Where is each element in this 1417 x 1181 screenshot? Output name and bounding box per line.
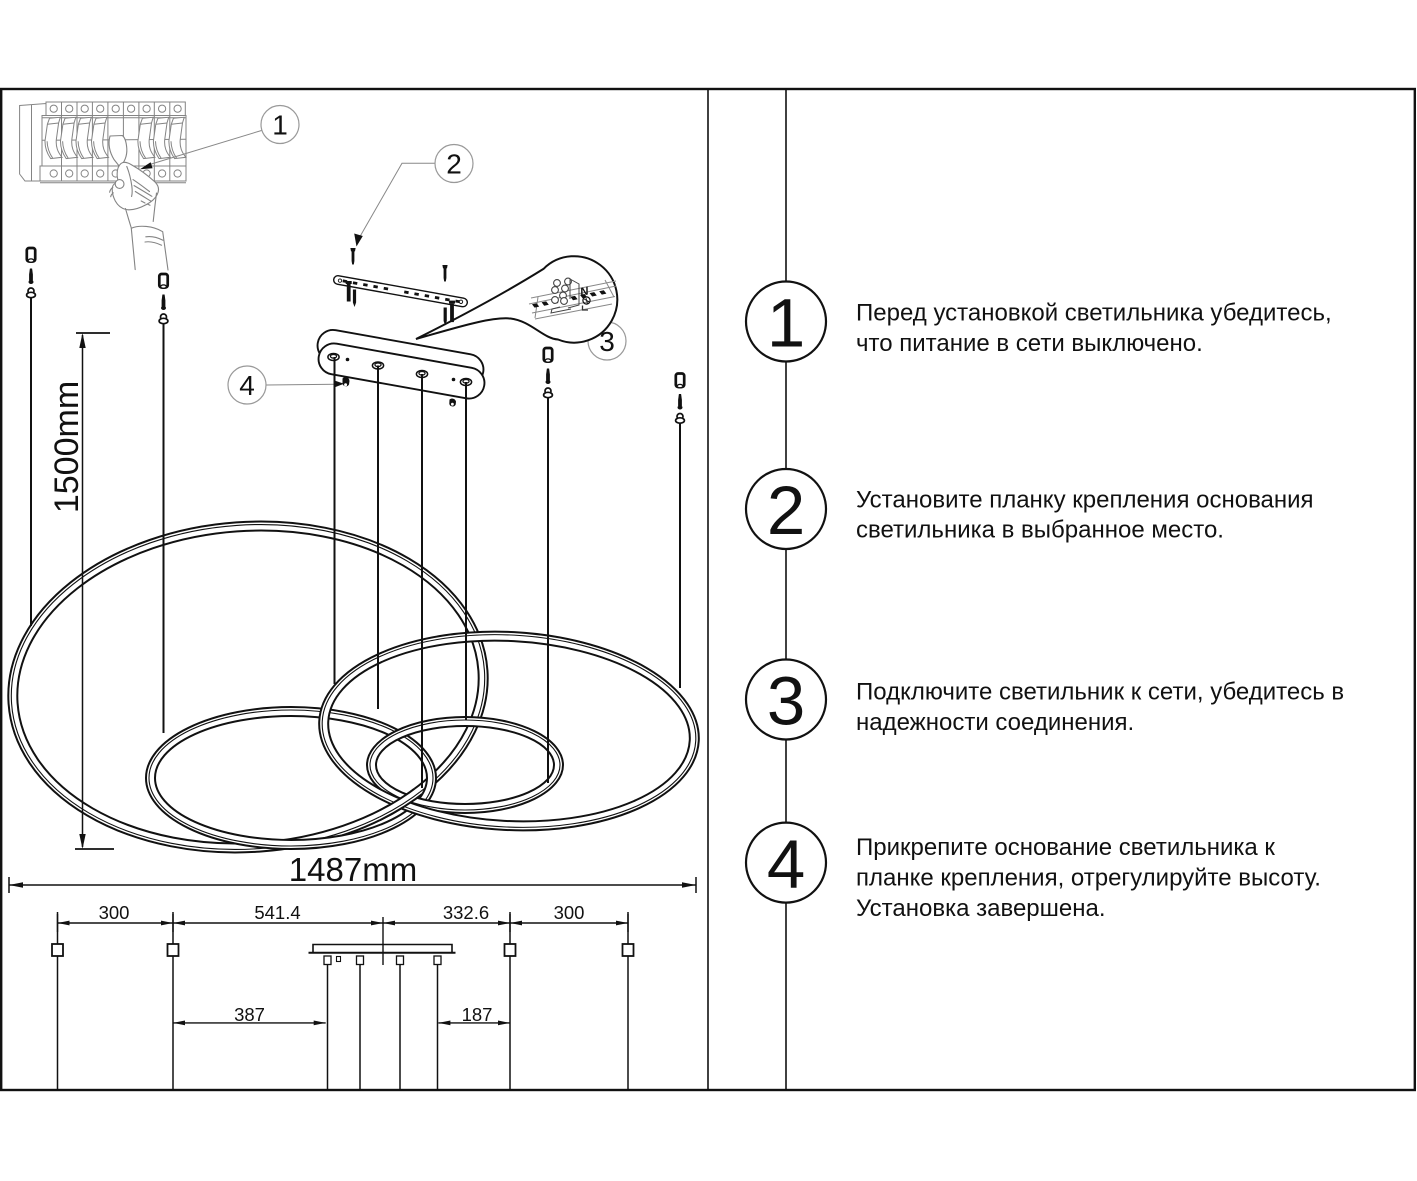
- svg-text:планке крепления, отрегулируйт: планке крепления, отрегулируйте высоту.: [856, 864, 1321, 891]
- svg-text:4: 4: [239, 370, 255, 401]
- svg-text:Подключите светильник к сети,: Подключите светильник к сети, убедитесь …: [856, 679, 1344, 706]
- svg-text:300: 300: [99, 902, 130, 923]
- svg-text:1487mm: 1487mm: [289, 851, 417, 888]
- svg-text:надежности соединения.: надежности соединения.: [856, 709, 1134, 736]
- svg-text:2: 2: [446, 149, 462, 180]
- svg-text:Установите планку крепления ос: Установите планку крепления основания: [856, 486, 1314, 513]
- svg-text:187: 187: [462, 1004, 493, 1025]
- svg-text:Установка завершена.: Установка завершена.: [856, 895, 1106, 922]
- svg-text:541.4: 541.4: [254, 902, 300, 923]
- svg-text:что питание в сети выключено.: что питание в сети выключено.: [856, 330, 1203, 357]
- svg-text:1500mm: 1500mm: [48, 381, 86, 513]
- svg-text:332.6: 332.6: [443, 902, 489, 923]
- svg-text:Прикрепите основание светильни: Прикрепите основание светильника к: [856, 834, 1275, 861]
- svg-text:Перед установкой светильника у: Перед установкой светильника убедитесь,: [856, 300, 1332, 327]
- svg-text:387: 387: [234, 1004, 265, 1025]
- svg-text:4: 4: [767, 826, 805, 903]
- svg-text:2: 2: [767, 472, 805, 549]
- svg-text:светильника в выбранное место.: светильника в выбранное место.: [856, 517, 1224, 544]
- svg-text:1: 1: [767, 285, 805, 362]
- svg-text:300: 300: [554, 902, 585, 923]
- svg-text:1: 1: [272, 110, 288, 141]
- svg-text:3: 3: [767, 663, 805, 740]
